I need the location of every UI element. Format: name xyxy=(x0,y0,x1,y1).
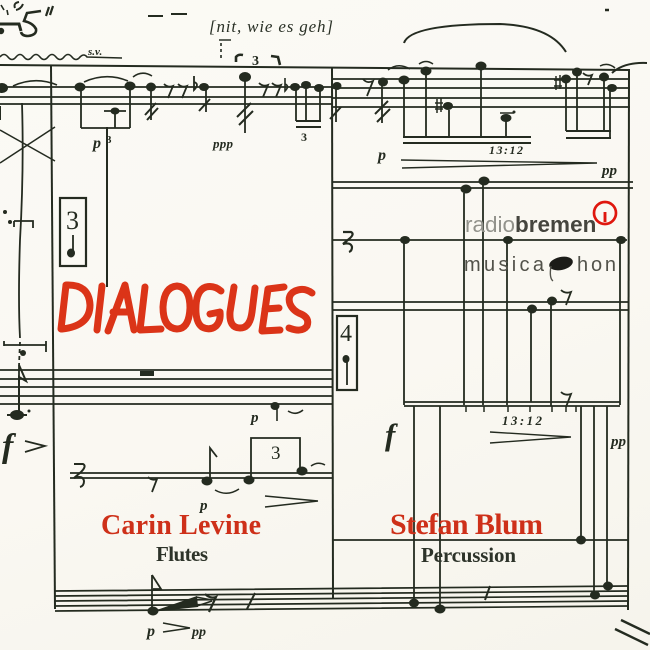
svg-text:3: 3 xyxy=(106,134,112,146)
svg-text:Carin Levine: Carin Levine xyxy=(101,510,261,541)
svg-text:Percussion: Percussion xyxy=(421,543,516,567)
svg-text:s.v.: s.v. xyxy=(87,46,102,58)
svg-text:4: 4 xyxy=(340,321,352,347)
svg-text:3: 3 xyxy=(66,206,79,235)
svg-text:f: f xyxy=(2,428,17,465)
svg-text:3: 3 xyxy=(301,130,307,144)
svg-text:3: 3 xyxy=(271,443,281,464)
svg-text:p: p xyxy=(145,623,155,640)
svg-text:13:12: 13:12 xyxy=(502,413,543,428)
svg-text:p: p xyxy=(249,410,259,426)
svg-text:pp: pp xyxy=(600,163,618,179)
svg-text:p: p xyxy=(91,135,101,152)
svg-text:[nit, wie es geh]: [nit, wie es geh] xyxy=(209,17,333,36)
svg-text:Stefan Blum: Stefan Blum xyxy=(390,508,543,541)
svg-text:hon: hon xyxy=(577,254,616,276)
svg-text:pp: pp xyxy=(609,434,627,450)
svg-text:musica: musica xyxy=(464,254,545,276)
svg-text:Flutes: Flutes xyxy=(156,542,208,566)
svg-text:f: f xyxy=(385,417,398,452)
svg-text:ppp: ppp xyxy=(212,136,234,151)
svg-text:radiobremen: radiobremen xyxy=(465,212,596,237)
svg-text:pp: pp xyxy=(191,625,206,640)
svg-text:p: p xyxy=(376,147,386,164)
svg-text:13:12: 13:12 xyxy=(489,143,523,157)
